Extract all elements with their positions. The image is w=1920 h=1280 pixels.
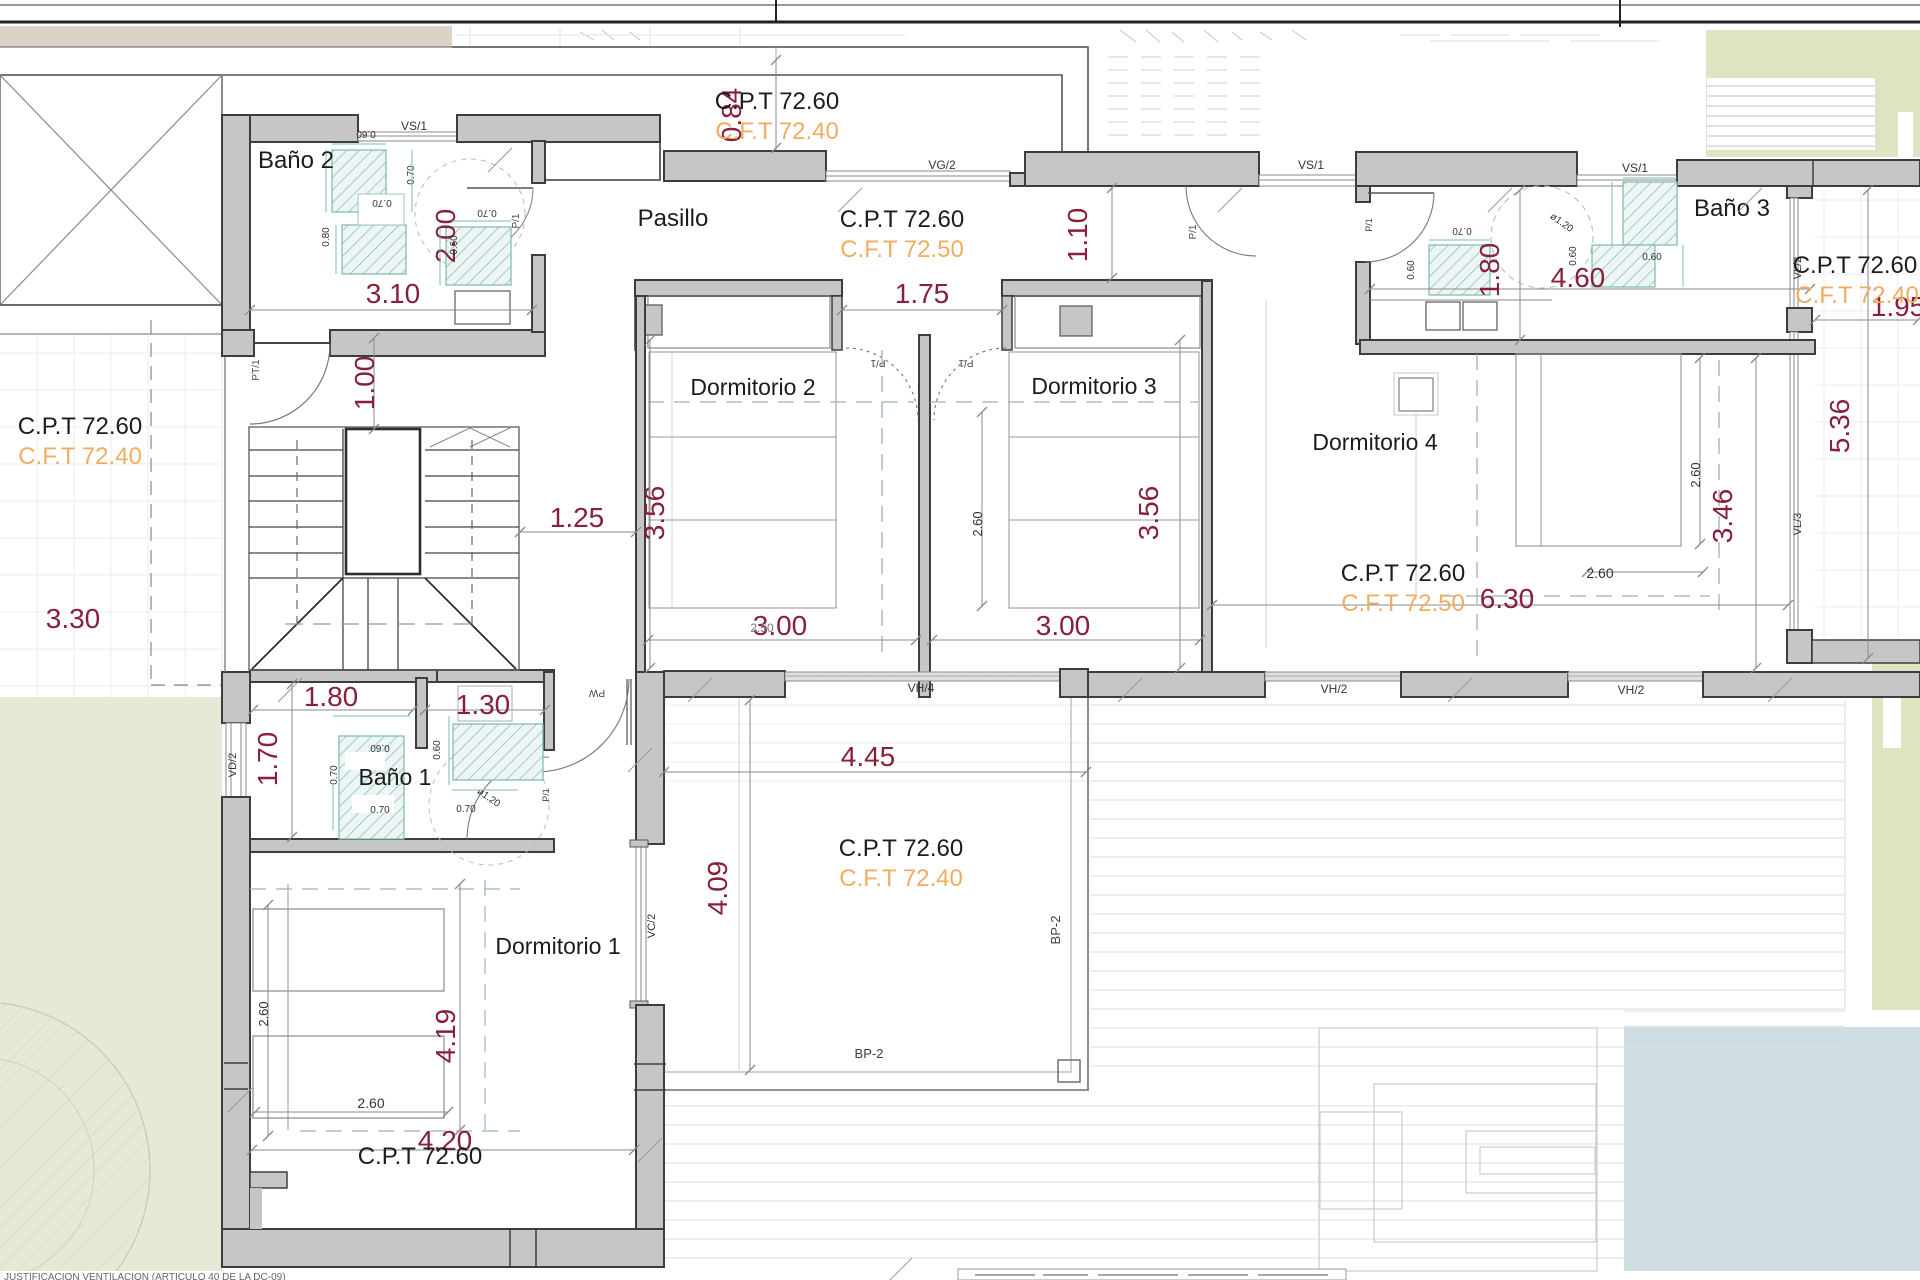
svg-text:P/1: P/1 [1364,218,1374,232]
svg-text:VS/1: VS/1 [1298,158,1324,172]
svg-text:BP-2: BP-2 [855,1046,884,1061]
svg-text:VL/2: VL/2 [1792,257,1804,280]
svg-text:1.70: 1.70 [252,732,283,787]
svg-text:3.30: 3.30 [46,603,101,634]
svg-text:PT/1: PT/1 [251,359,262,381]
svg-text:C.P.T 72.60: C.P.T 72.60 [1341,560,1466,587]
svg-text:Dormitorio 1: Dormitorio 1 [495,933,620,959]
svg-text:0.60: 0.60 [356,128,376,139]
svg-text:5.36: 5.36 [1824,399,1855,454]
svg-text:P/1: P/1 [870,357,885,368]
svg-text:Pasillo: Pasillo [638,205,709,232]
svg-text:0.70: 0.70 [329,765,340,785]
svg-text:0.80: 0.80 [321,227,332,247]
svg-text:Dormitorio 3: Dormitorio 3 [1031,373,1156,399]
svg-text:C.P.T 72.60: C.P.T 72.60 [839,835,964,862]
svg-text:3.00: 3.00 [1036,610,1091,641]
svg-text:VD/2: VD/2 [227,753,239,777]
svg-text:3.56: 3.56 [1133,486,1164,541]
svg-text:JUSTIFICACION VENTILACION (ART: JUSTIFICACION VENTILACION (ARTICULO 40 D… [4,1272,286,1280]
svg-text:2.60: 2.60 [1586,565,1613,581]
svg-text:C.P.T 72.60: C.P.T 72.60 [715,88,840,115]
svg-text:2.60: 2.60 [357,1095,384,1111]
svg-text:PW: PW [588,687,605,698]
svg-text:C.P.T 72.60: C.P.T 72.60 [840,206,965,233]
svg-text:1.80: 1.80 [1474,243,1505,298]
svg-text:4.09: 4.09 [702,861,733,916]
svg-text:1.80: 1.80 [304,681,359,712]
svg-text:6.30: 6.30 [1480,583,1535,614]
svg-text:3.56: 3.56 [639,486,670,541]
svg-text:VH/4: VH/4 [908,681,935,695]
svg-text:VC/2: VC/2 [646,914,658,938]
svg-text:1.00: 1.00 [349,356,380,411]
svg-text:0.70: 0.70 [456,804,476,815]
svg-text:3.10: 3.10 [366,278,421,309]
svg-text:2.60: 2.60 [970,511,985,536]
svg-text:0.60: 0.60 [370,742,390,753]
svg-text:2.50: 2.50 [750,621,774,635]
svg-text:Baño 3: Baño 3 [1694,195,1770,222]
svg-text:0.60: 0.60 [1642,252,1662,263]
svg-text:0.60: 0.60 [432,740,443,760]
svg-text:Dormitorio 2: Dormitorio 2 [690,374,815,400]
svg-text:P/1: P/1 [511,213,522,228]
svg-text:3.46: 3.46 [1707,489,1738,544]
svg-text:VS/1: VS/1 [1622,161,1648,175]
svg-text:VH/2: VH/2 [1618,683,1645,697]
svg-text:P/1: P/1 [958,357,973,368]
svg-text:1.30: 1.30 [456,689,511,720]
svg-text:P/1: P/1 [1188,224,1199,239]
svg-text:0.70: 0.70 [477,207,497,218]
svg-text:VL/3: VL/3 [1792,513,1804,536]
svg-text:VS/1: VS/1 [401,119,427,133]
svg-text:Baño 1: Baño 1 [359,764,432,790]
svg-text:C.F.T 72.40: C.F.T 72.40 [1795,282,1919,309]
svg-text:4.19: 4.19 [430,1009,461,1064]
svg-text:1.25: 1.25 [550,502,605,533]
svg-text:0.60: 0.60 [449,235,460,255]
svg-text:C.F.T 72.40: C.F.T 72.40 [839,865,963,892]
svg-text:C.F.T 72.50: C.F.T 72.50 [840,236,964,263]
svg-text:C.P.T 72.60: C.P.T 72.60 [18,413,143,440]
svg-text:VH/2: VH/2 [1321,682,1348,696]
svg-text:1.75: 1.75 [895,278,950,309]
svg-text:P/1: P/1 [541,788,551,802]
svg-text:Dormitorio 4: Dormitorio 4 [1312,429,1437,455]
svg-text:0.70: 0.70 [372,197,392,208]
svg-text:C.P.T 72.60: C.P.T 72.60 [358,1143,483,1170]
svg-text:C.F.T 72.40: C.F.T 72.40 [715,118,839,145]
svg-text:0.60: 0.60 [1406,260,1417,280]
svg-text:BP-2: BP-2 [1048,916,1063,945]
svg-text:0.70: 0.70 [1452,225,1472,236]
svg-text:2.60: 2.60 [256,1001,271,1026]
svg-text:0.70: 0.70 [370,805,390,816]
svg-text:4.45: 4.45 [841,741,896,772]
svg-text:C.F.T 72.40: C.F.T 72.40 [18,443,142,470]
svg-text:2.60: 2.60 [1688,462,1703,487]
svg-text:C.F.T 72.50: C.F.T 72.50 [1341,590,1465,617]
svg-text:VG/2: VG/2 [928,158,956,172]
svg-text:0.60: 0.60 [1568,246,1579,266]
svg-text:Baño 2: Baño 2 [258,147,334,174]
svg-text:1.10: 1.10 [1062,208,1093,263]
svg-text:C.P.T 72.60: C.P.T 72.60 [1793,252,1918,279]
